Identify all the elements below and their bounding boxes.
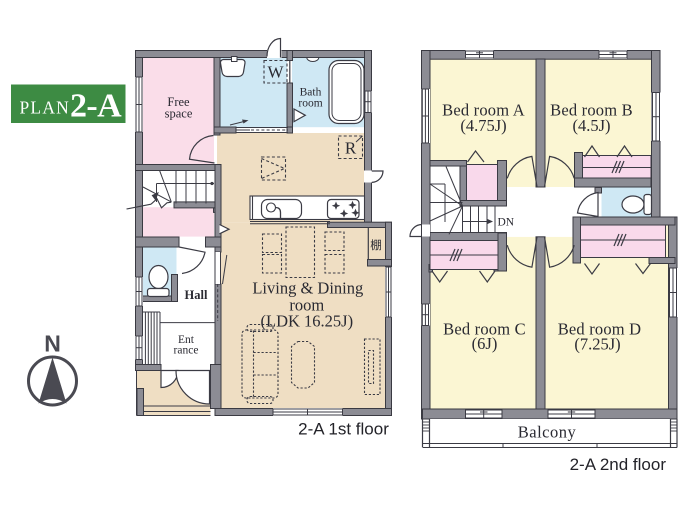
svg-text:(LDK 16.25J): (LDK 16.25J) (261, 312, 354, 331)
svg-text:2-A 2nd floor: 2-A 2nd floor (570, 455, 667, 474)
svg-text:W: W (267, 63, 284, 82)
svg-text:PLAN: PLAN (20, 98, 71, 118)
svg-text:(7.25J): (7.25J) (574, 335, 620, 354)
svg-text:R: R (345, 139, 357, 158)
svg-text:2-A 1st floor: 2-A 1st floor (298, 420, 389, 439)
svg-text:(4.5J): (4.5J) (572, 116, 610, 135)
svg-text:rance: rance (174, 345, 199, 357)
svg-text:space: space (165, 107, 193, 121)
svg-text:N: N (44, 331, 61, 357)
svg-text:DN: DN (498, 217, 515, 229)
svg-text:(4.75J): (4.75J) (460, 116, 506, 135)
svg-text:Hall: Hall (185, 288, 208, 302)
svg-text:棚: 棚 (370, 238, 382, 252)
svg-text:Balcony: Balcony (518, 423, 577, 442)
svg-text:room: room (298, 98, 322, 110)
svg-text:2-A: 2-A (70, 88, 122, 125)
svg-text:(6J): (6J) (472, 334, 498, 353)
